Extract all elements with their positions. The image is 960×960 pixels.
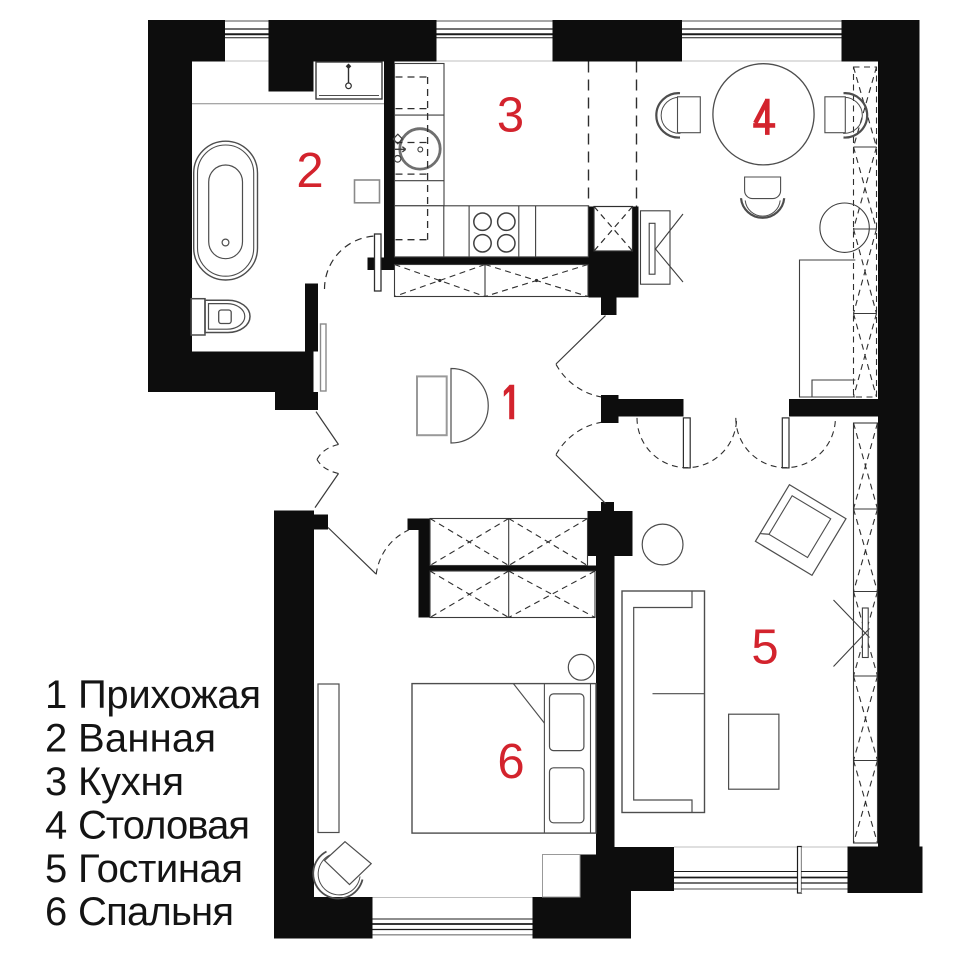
svg-text:4: 4 xyxy=(45,803,67,847)
svg-text:6: 6 xyxy=(45,890,67,934)
svg-text:3: 3 xyxy=(497,89,524,143)
svg-text:Ванная: Ванная xyxy=(78,717,216,761)
svg-text:Прихожая: Прихожая xyxy=(78,673,261,717)
svg-text:2: 2 xyxy=(45,717,67,761)
svg-text:Кухня: Кухня xyxy=(78,760,184,804)
svg-text:3: 3 xyxy=(45,760,67,804)
svg-text:Гостиная: Гостиная xyxy=(78,847,243,891)
svg-text:5: 5 xyxy=(45,847,67,891)
svg-text:Столовая: Столовая xyxy=(78,803,250,847)
svg-text:1: 1 xyxy=(45,673,67,717)
svg-text:Спальня: Спальня xyxy=(78,890,234,934)
svg-text:2: 2 xyxy=(296,144,323,198)
svg-text:5: 5 xyxy=(751,621,778,675)
svg-text:6: 6 xyxy=(497,735,524,789)
